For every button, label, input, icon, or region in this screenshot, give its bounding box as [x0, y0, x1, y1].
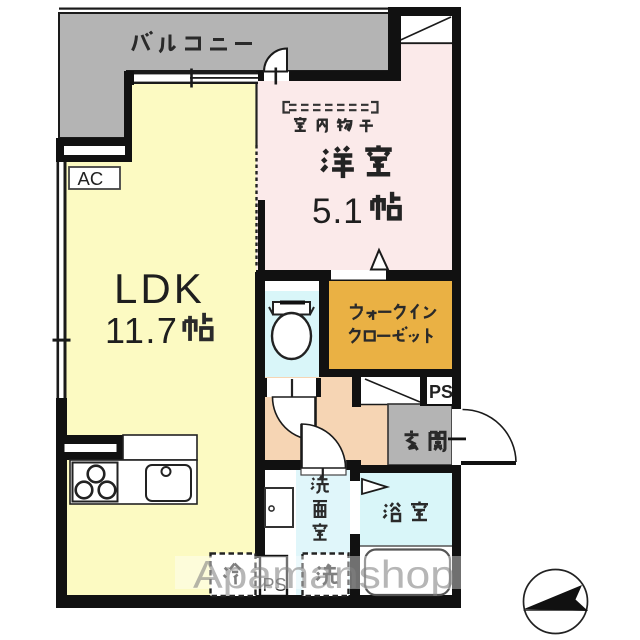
- svg-text:Apamanshop: Apamanshop: [193, 554, 455, 597]
- svg-text:PS: PS: [429, 382, 453, 402]
- svg-text:AC: AC: [78, 168, 104, 189]
- svg-text:5.1: 5.1: [312, 192, 364, 231]
- svg-text:11.7: 11.7: [105, 310, 178, 351]
- svg-text:LDK: LDK: [114, 265, 205, 312]
